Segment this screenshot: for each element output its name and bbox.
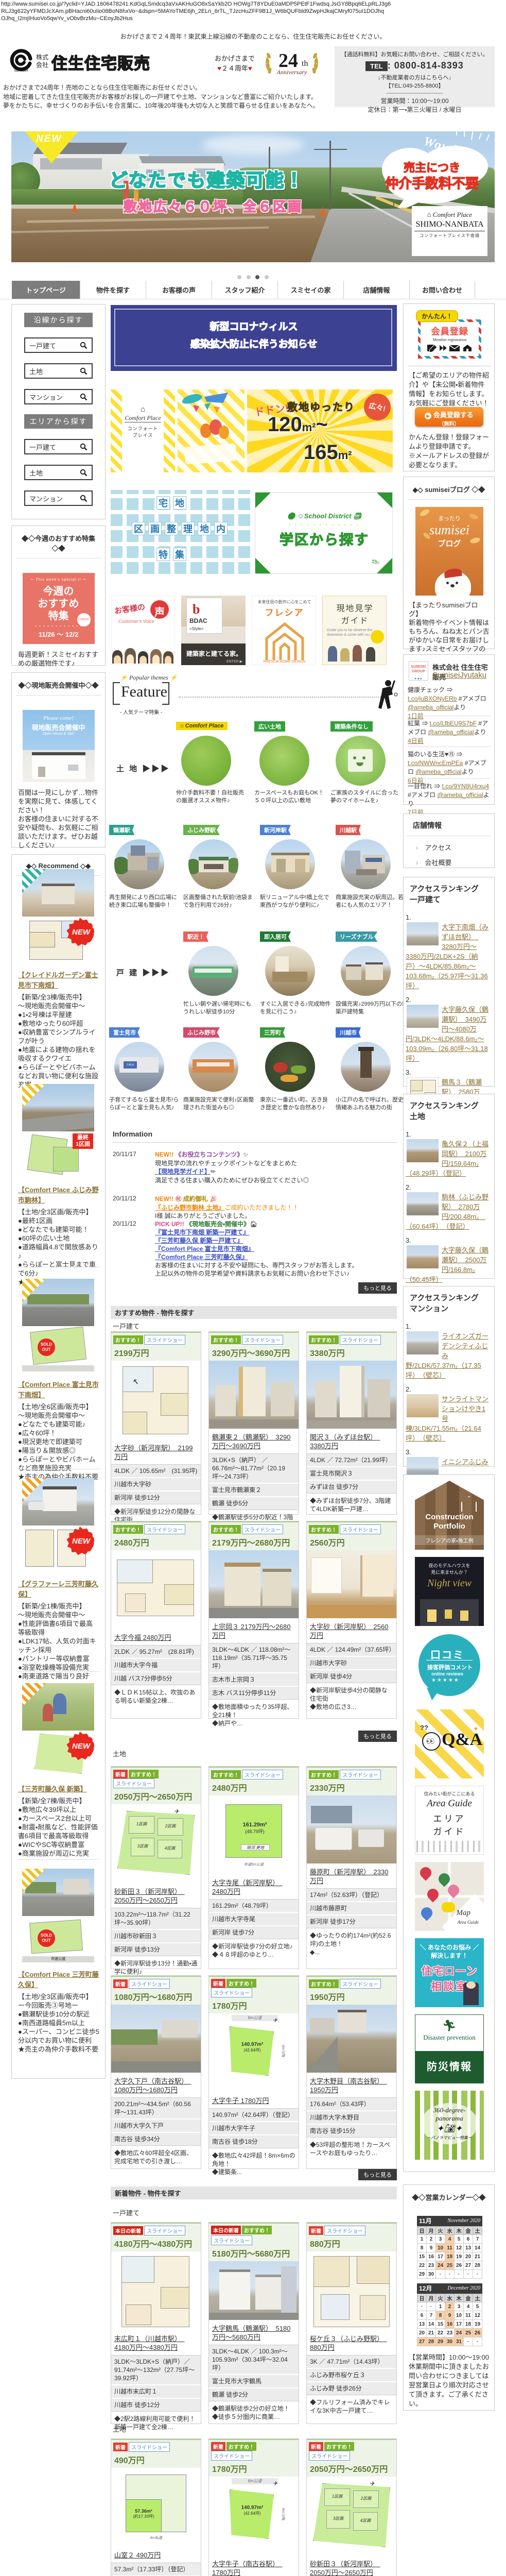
svg-text:Anniversary: Anniversary (276, 69, 307, 76)
svg-text:仲介手数料不要: 仲介手数料不要 (385, 176, 479, 191)
svg-text:sumisei: sumisei (14, 68, 28, 72)
svg-text:th: th (302, 59, 308, 68)
svg-text:売主につき: 売主につき (404, 161, 460, 174)
